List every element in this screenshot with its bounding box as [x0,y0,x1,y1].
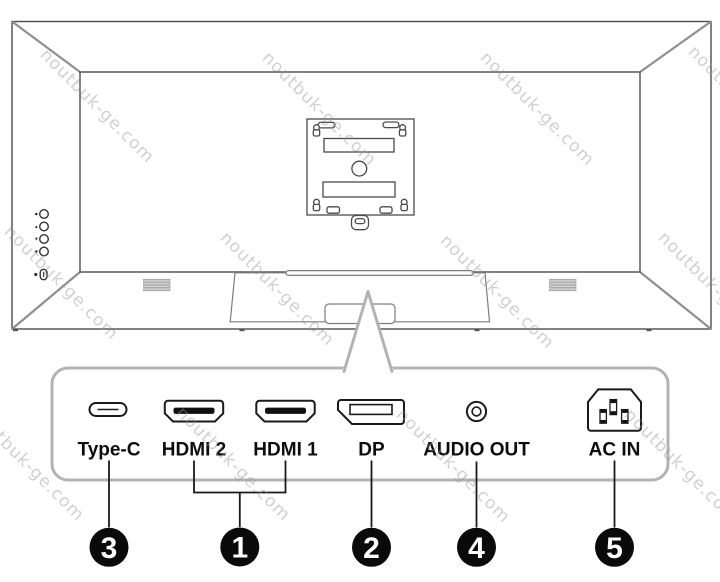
port-hdmi-2 [165,401,223,422]
vesa-top-tab [383,122,399,128]
bottom-edge-tick [13,329,18,332]
monitor-rear-ports-diagram: Type-C HDMI 2 HDMI 1 DP AUDIO OUT AC IN … [0,0,720,582]
vesa-center-hole [352,161,367,176]
port-audio-out [467,402,486,421]
bottom-edge-tick [240,329,245,332]
vesa-screw-body [313,130,319,136]
callout-number: 3 [101,532,118,565]
port-label-ac-in: AC IN [589,440,641,461]
port-label-type-c: Type-C [78,440,141,461]
vent-bar [144,282,171,284]
callout-4: 4 [457,528,496,567]
audio-jack-icon [467,402,486,421]
callout-number: 4 [468,532,485,565]
bottom-edge-tick [647,329,652,332]
ac-pin-cap [622,420,627,423]
vesa-screw-body [401,204,407,210]
ac-pin-cap [611,400,616,403]
osd-button-icon [40,222,49,231]
callout-number: 5 [606,532,623,565]
vent-bar [550,289,577,291]
vent-bar [144,279,171,281]
osd-button-icon [40,235,49,244]
osd-button-icon [40,210,49,219]
power-dot-marker [34,273,37,276]
ac-pin-cap [611,411,616,414]
vent-bar [144,289,171,291]
vesa-slot-upper [324,139,394,153]
callout-number: 2 [363,532,380,565]
callout-1: 1 [220,528,259,567]
vent-bar [550,286,577,288]
vesa-screw-body [399,130,405,136]
bottom-edge-tick [475,329,480,332]
quick-release-slot [355,219,365,224]
port-label-hdmi-1: HDMI 1 [253,440,318,461]
vent-bar [550,282,577,284]
diagram-canvas: Type-C HDMI 2 HDMI 1 DP AUDIO OUT AC IN … [0,0,720,582]
displayport-icon [338,400,404,424]
vesa-screw-body [313,204,319,210]
port-label-hdmi-2: HDMI 2 [162,440,226,461]
stand-groove [286,271,473,276]
ac-pin-cap [601,420,606,423]
ac-pin-cap [622,410,627,413]
hdmi-tongue [265,408,306,414]
callout-5: 5 [595,528,634,567]
button-dot-marker [35,250,38,253]
port-dp [338,400,404,424]
ac-pin-cap [601,410,606,413]
callout-3: 3 [90,528,129,567]
vent-bar [550,279,577,281]
port-label-audio-out: AUDIO OUT [423,440,530,461]
port-hdmi-1 [256,401,314,422]
vesa-bottom-tab [327,207,340,213]
vesa-bottom-tab [380,207,392,213]
osd-button-icon [40,247,49,256]
hdmi-tongue [174,408,215,414]
vent-bar [144,286,171,288]
port-label-dp: DP [358,440,385,461]
callout-2: 2 [352,528,391,567]
vesa-slot-lower [323,182,395,197]
callout-number: 1 [231,532,248,565]
vesa-mount-plate [307,119,414,230]
port-type-c [90,403,127,416]
vesa-top-tab [318,122,335,128]
button-dot-marker [35,213,38,216]
port-ac-in [588,389,641,430]
